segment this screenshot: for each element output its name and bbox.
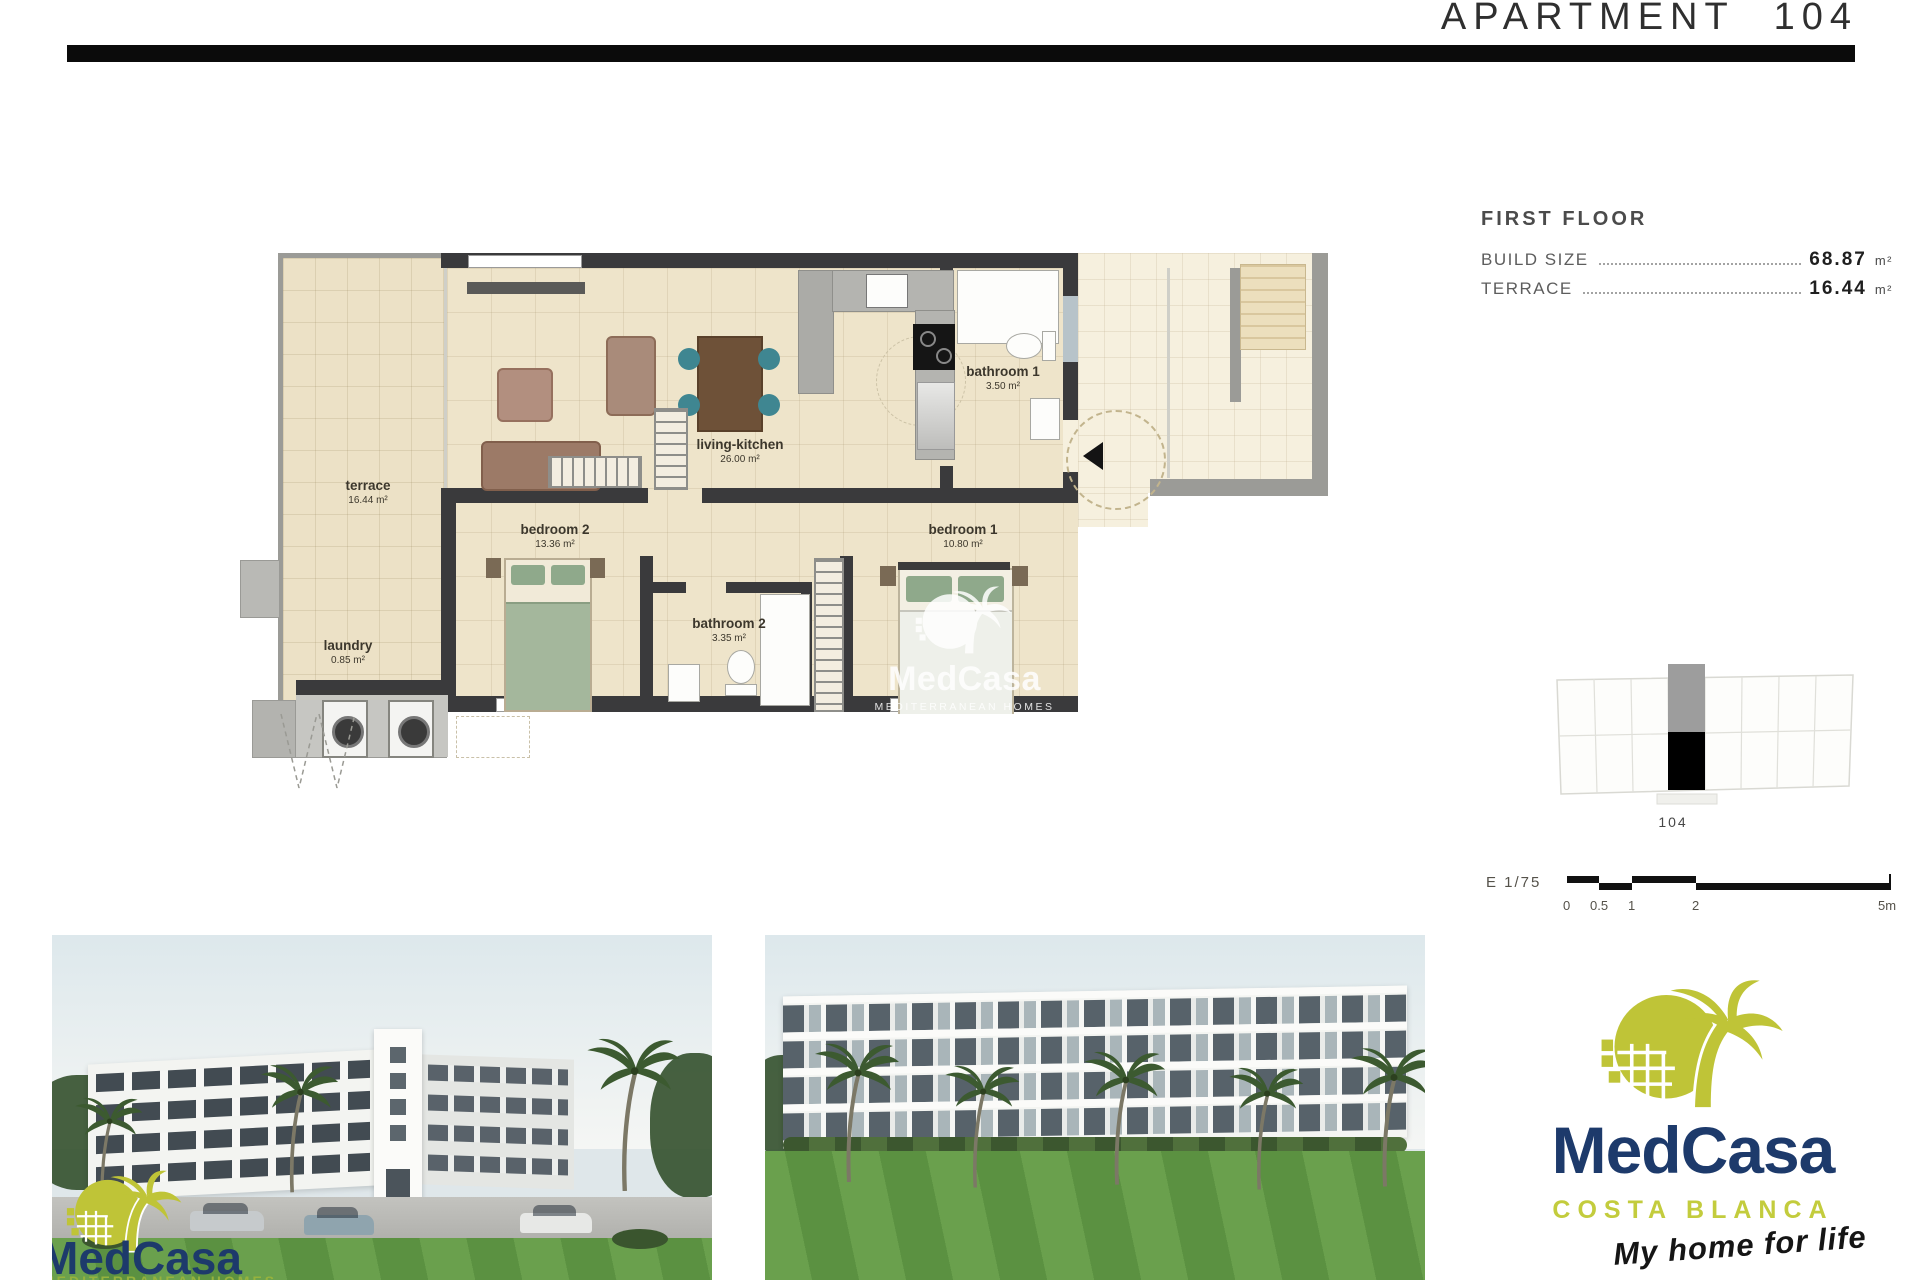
terrace-wall-top: [278, 253, 447, 258]
pillow: [511, 565, 545, 585]
hall-wardrobe: [548, 456, 642, 488]
window-band: [428, 1125, 568, 1146]
landing-floor-tab: [1078, 493, 1148, 527]
room-label-bathroom2: bathroom 2 3.35 m²: [686, 616, 772, 645]
room-name: bedroom 2: [512, 522, 598, 539]
photo-building-exterior-1: MedCasa MEDITERRANEAN HOMES: [52, 935, 712, 1280]
cooktop-burner: [920, 331, 936, 347]
wall-laundry-bottom: [296, 680, 446, 695]
info-row-terrace: TERRACE 16.44 m²: [1481, 278, 1893, 300]
wall-terrace-divider: [441, 488, 456, 712]
room-area: 10.80 m²: [918, 539, 1008, 552]
nightstand: [590, 558, 605, 578]
room-name: terrace: [328, 478, 408, 495]
room-label-bathroom1: bathroom 1 3.50 m²: [960, 364, 1046, 393]
dining-chair: [758, 348, 780, 370]
scale-segment: [1632, 876, 1696, 883]
terrace-wall-bottom: [278, 753, 447, 758]
info-row-build-size: BUILD SIZE 68.87 m²: [1481, 249, 1893, 271]
scale-tick: 1: [1628, 898, 1635, 913]
kitchen-appliance: [917, 382, 955, 450]
inner-door-swing: [876, 336, 966, 426]
bush: [612, 1229, 668, 1249]
scale-tick: 5m: [1878, 898, 1896, 913]
photo-building-exterior-2: [765, 935, 1425, 1280]
locator-highlight-upper: [1668, 664, 1705, 732]
scale-tick: 2: [1692, 898, 1699, 913]
pillow: [906, 576, 952, 602]
locator-highlight-unit: [1668, 732, 1705, 790]
room-name: bathroom 1: [960, 364, 1046, 381]
brand-slogan: My home for life: [1589, 1218, 1891, 1275]
room-area: 3.50 m²: [960, 381, 1046, 394]
watermark-tagline: MEDITERRANEAN HOMES: [872, 701, 1057, 713]
locator-unit-label: 104: [1638, 814, 1708, 830]
car-cabin: [533, 1205, 576, 1216]
room-name: bathroom 2: [686, 616, 772, 633]
room-name: laundry: [310, 638, 386, 655]
laundry-door-swings: [278, 712, 358, 796]
medcasa-logo-icon: [915, 582, 1015, 655]
brand-region: COSTA BLANCA: [1528, 1196, 1858, 1225]
window-top: [468, 255, 582, 268]
stairs: [1240, 264, 1306, 350]
landing-edge: [1167, 268, 1170, 478]
terrace-glass-door: [444, 268, 447, 488]
palm-tree-icon: [1337, 1029, 1425, 1204]
plan-watermark: MedCasa MEDITERRANEAN HOMES: [872, 582, 1057, 713]
locator-diagram: [1545, 658, 1865, 808]
nightstand: [1012, 566, 1028, 586]
room-area: 13.36 m²: [512, 539, 598, 552]
scale-segment: [1599, 883, 1632, 890]
pillow: [958, 576, 1004, 602]
window-right: [1063, 296, 1078, 362]
toilet: [1006, 333, 1042, 359]
shower: [957, 270, 1059, 344]
room-label-laundry: laundry 0.85 m²: [310, 638, 386, 667]
car: [190, 1211, 264, 1231]
dining-chair: [678, 394, 700, 416]
planter-outline: [456, 716, 530, 758]
scale-tick: 0: [1563, 898, 1570, 913]
info-floor-label: FIRST FLOOR: [1481, 208, 1893, 231]
info-panel: FIRST FLOOR BUILD SIZE 68.87 m² TERRACE …: [1481, 208, 1893, 307]
bed-bedroom1: [898, 568, 1014, 714]
tower-window: [390, 1047, 406, 1147]
room-label-bedroom1: bedroom 1 10.80 m²: [918, 522, 1008, 551]
pillow: [551, 565, 585, 585]
sofa: [481, 441, 601, 491]
duvet: [900, 610, 1012, 714]
bathroom1-door-gap: [940, 420, 953, 466]
apartment-floor: [447, 268, 1078, 700]
car: [304, 1215, 374, 1235]
washer-drum: [398, 716, 430, 748]
window-band: [428, 1065, 568, 1086]
utility-box: [252, 700, 296, 758]
palm-tree-icon: [801, 1027, 901, 1197]
page-title: APARTMENT 104: [1441, 0, 1858, 39]
shower: [760, 594, 810, 706]
laundry-niche: [296, 695, 448, 757]
toilet-tank: [1042, 331, 1056, 361]
info-unit: m²: [1875, 253, 1893, 268]
medcasa-logo-icon: [1600, 972, 1790, 1110]
wall-bathroom2-top-a: [652, 582, 686, 593]
info-label: TERRACE: [1481, 279, 1573, 299]
room-label-living-kitchen: living-kitchen 26.00 m²: [692, 437, 788, 466]
scale-tick: 0.5: [1590, 898, 1608, 913]
entry-door-swing: [1066, 410, 1166, 510]
palm-tree-icon: [1071, 1035, 1167, 1200]
window-bedroom2: [496, 698, 590, 712]
scale-end-tick: [1889, 874, 1891, 890]
wall-bathroom2-top-b: [726, 582, 802, 593]
scale-label: E 1/75: [1486, 874, 1541, 891]
headboard: [898, 562, 1010, 570]
title-rule: [67, 45, 1855, 62]
scale-segment: [1696, 883, 1890, 890]
palm-tree-icon: [933, 1051, 1021, 1201]
kitchen-sink: [866, 274, 908, 308]
watermark-brand-name: MedCasa: [872, 660, 1057, 699]
room-name: bedroom 1: [918, 522, 1008, 539]
wall-bottom: [441, 696, 1078, 712]
landing-floor: [1078, 253, 1328, 493]
wall-bathroom1-left: [940, 268, 953, 488]
wall-right: [1063, 253, 1078, 503]
toilet-tank: [725, 684, 757, 696]
dotted-leader: [1583, 292, 1802, 294]
room-area: 26.00 m²: [692, 454, 788, 467]
cooktop-burner: [936, 348, 952, 364]
dining-table: [697, 336, 763, 432]
wall-bedroom1-left: [840, 556, 853, 712]
nightstand: [880, 566, 896, 586]
terrace-wall-left: [278, 253, 283, 758]
toilet: [727, 650, 755, 684]
landing-wall-right: [1312, 253, 1328, 493]
building-right-facade: [422, 1054, 574, 1189]
stair-tower: [374, 1029, 422, 1215]
room-area: 16.44 m²: [328, 495, 408, 508]
brand-name: MedCasa: [1528, 1112, 1858, 1188]
loveseat-sofa: [606, 336, 656, 416]
armchair: [497, 368, 553, 422]
room-area: 3.35 m²: [686, 633, 772, 646]
ac-unit: [240, 560, 280, 618]
brochure-page: APARTMENT 104 FIRST FLOOR BUILD SIZE 68.…: [0, 0, 1920, 1280]
room-label-terrace: terrace 16.44 m²: [328, 478, 408, 507]
info-value: 68.87: [1809, 249, 1867, 271]
washer-drum: [332, 716, 364, 748]
tv-unit: [467, 282, 585, 294]
info-value: 16.44: [1809, 278, 1867, 300]
room-area: 0.85 m²: [310, 655, 386, 668]
landing-wall-bottom: [1150, 479, 1328, 496]
dining-chair: [678, 348, 700, 370]
room-label-bedroom2: bedroom 2 13.36 m²: [512, 522, 598, 551]
bed-bedroom2: [504, 558, 592, 712]
watermark-tagline: MEDITERRANEAN HOMES: [52, 1273, 277, 1280]
info-unit: m²: [1875, 282, 1893, 297]
wall-mid-a: [441, 488, 648, 503]
kitchen-counter-right: [915, 310, 955, 460]
kitchen-counter-top: [832, 270, 954, 312]
room-name: living-kitchen: [692, 437, 788, 454]
blanket: [506, 602, 590, 710]
palm-tree-icon: [248, 1053, 340, 1203]
sink: [668, 664, 700, 702]
room-terrace-floor: [283, 258, 447, 753]
window-bedroom1: [890, 698, 984, 712]
car: [520, 1213, 592, 1233]
kitchen-tall-cabinet: [798, 270, 834, 394]
info-label: BUILD SIZE: [1481, 250, 1589, 270]
hall-closet: [654, 408, 688, 490]
scale-segment: [1567, 876, 1599, 883]
wall-bathroom2-right: [801, 582, 812, 712]
entry-arrow-icon: [1083, 442, 1103, 470]
palm-tree-icon: [1217, 1053, 1305, 1203]
landing-wall-inner: [1230, 268, 1241, 402]
washing-machine: [322, 700, 368, 758]
palm-tree-icon: [572, 1019, 682, 1209]
cooktop: [913, 324, 955, 370]
bedroom1-wardrobe: [814, 558, 844, 712]
entry-door-gap: [1063, 420, 1078, 472]
window-band: [428, 1095, 568, 1116]
dining-chair: [758, 394, 780, 416]
car-cabin: [203, 1203, 248, 1214]
dotted-leader: [1599, 263, 1802, 265]
wall-bedroom2-right: [640, 556, 653, 712]
nightstand: [486, 558, 501, 578]
window-band: [428, 1155, 568, 1176]
sink: [1030, 398, 1060, 440]
car-cabin: [317, 1207, 358, 1218]
wall-top: [441, 253, 1078, 268]
washing-machine: [388, 700, 434, 758]
wall-mid-b: [702, 488, 1078, 503]
